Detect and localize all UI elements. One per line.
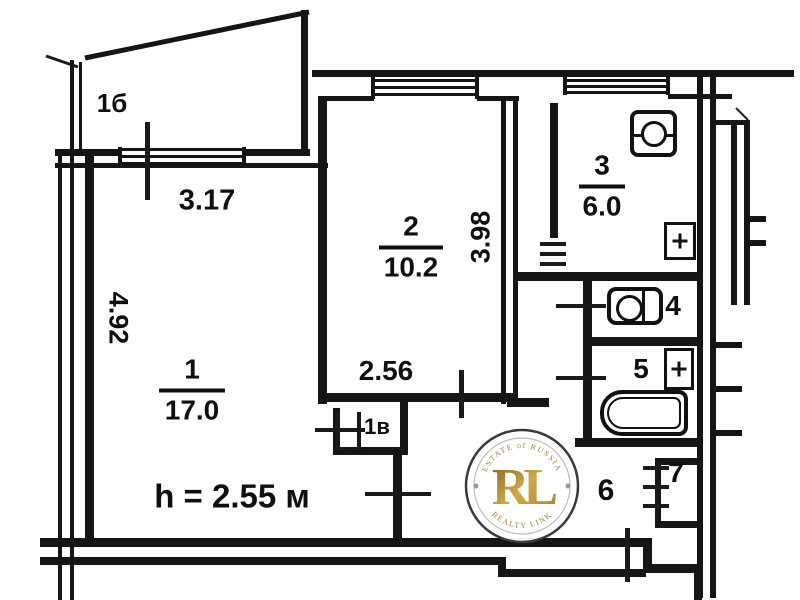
wall xyxy=(716,386,742,392)
antenna-stem xyxy=(79,62,82,152)
wall xyxy=(312,70,794,77)
fraction-line xyxy=(579,185,625,189)
door-opening-tick xyxy=(336,412,340,450)
dim-balcony-width: 3.17 xyxy=(179,187,235,216)
door-opening-tick xyxy=(540,252,566,256)
wall xyxy=(550,103,558,238)
door-opening-tick xyxy=(625,528,630,582)
room-number: 2 xyxy=(403,213,419,241)
window-cap xyxy=(563,77,567,95)
wall xyxy=(513,97,518,404)
wall xyxy=(40,557,505,565)
wall xyxy=(318,96,327,404)
watermark-seal: ESTATE of RUSSIA REALTY LINK RL xyxy=(452,416,592,556)
floor-plan: 1б 3.17 1 17.0 4.92 h = 2.55 м 2 10.2 3.… xyxy=(0,0,800,600)
wall xyxy=(655,521,697,528)
wall xyxy=(744,120,750,305)
seal-dot-right xyxy=(566,484,571,489)
door-opening-tick xyxy=(145,122,150,200)
door-opening-tick xyxy=(459,370,464,418)
wall xyxy=(507,398,549,407)
room-1-label: 1 17.0 xyxy=(159,356,225,425)
wall xyxy=(55,149,122,156)
stove-burner xyxy=(641,121,667,147)
plus-icon xyxy=(678,362,681,377)
window-cap xyxy=(242,147,246,167)
door-opening-tick xyxy=(365,492,431,496)
stove-icon xyxy=(630,110,677,157)
window-line xyxy=(374,79,477,82)
window-line xyxy=(566,79,668,82)
room-3-label: 3 6.0 xyxy=(579,152,625,221)
bathtub-icon xyxy=(600,390,688,436)
wall xyxy=(583,337,698,346)
room-number: 3 xyxy=(594,152,610,180)
door-opening-tick xyxy=(556,376,606,380)
window-cap xyxy=(371,77,375,99)
ceiling-height-note: h = 2.55 м xyxy=(154,480,310,513)
wall xyxy=(518,272,698,281)
fraction-line xyxy=(379,246,443,250)
vent-shaft-icon xyxy=(664,222,696,260)
window-line xyxy=(120,155,245,158)
wall xyxy=(393,447,402,545)
wall xyxy=(498,569,646,577)
window-line xyxy=(120,148,245,151)
wall xyxy=(58,152,62,600)
door-opening-tick xyxy=(643,504,669,508)
room-2-label: 2 10.2 xyxy=(379,213,443,282)
wall xyxy=(575,438,698,447)
closet-label: 1в xyxy=(364,416,390,438)
room-number: 1 xyxy=(184,356,200,384)
fraction-line xyxy=(159,389,225,393)
room-area: 10.2 xyxy=(384,254,439,282)
room-area: 6.0 xyxy=(583,193,622,221)
wall xyxy=(583,281,592,341)
window-cap xyxy=(118,147,122,167)
dim-room2-depth: 3.98 xyxy=(468,211,495,264)
wall xyxy=(85,150,94,545)
window-line xyxy=(374,86,477,89)
door-opening-tick xyxy=(643,485,669,489)
window-line xyxy=(566,91,668,94)
seal-initials: RL xyxy=(492,459,557,516)
room-5-label: 5 xyxy=(633,355,649,383)
plus-icon xyxy=(679,234,682,249)
window-cap xyxy=(475,77,479,99)
wall xyxy=(750,240,766,246)
wall xyxy=(694,564,702,600)
stair-tick xyxy=(736,108,748,120)
wall xyxy=(70,60,74,600)
room-6-label: 6 xyxy=(598,476,615,506)
seal-dot-left xyxy=(474,484,479,489)
balcony-slant-wall xyxy=(85,12,309,58)
door-opening-tick xyxy=(556,304,606,308)
wall xyxy=(697,74,703,598)
door-opening-tick xyxy=(540,242,566,246)
window-line xyxy=(120,162,245,165)
door-opening-tick xyxy=(643,466,669,470)
bathtub-inner xyxy=(607,397,681,429)
toilet-icon xyxy=(607,287,663,325)
wall xyxy=(710,74,716,598)
room-area: 17.0 xyxy=(165,397,220,425)
door-opening-tick xyxy=(540,262,566,266)
balcony-label: 1б xyxy=(97,90,128,116)
window-line xyxy=(374,93,477,96)
dim-room2-width: 2.56 xyxy=(359,357,414,385)
wall xyxy=(501,97,506,404)
dim-room1-depth: 4.92 xyxy=(105,292,132,345)
room-4-label: 4 xyxy=(665,292,681,320)
wall xyxy=(716,430,742,436)
window-line xyxy=(566,85,668,88)
toilet-tank xyxy=(642,287,645,325)
room-7-label: 7 xyxy=(668,459,684,487)
wall xyxy=(716,342,742,348)
toilet-bowl xyxy=(616,295,643,322)
window-cap xyxy=(666,77,670,95)
wall xyxy=(750,216,766,222)
wall xyxy=(243,149,310,156)
vent-shaft-icon xyxy=(664,348,694,390)
wall xyxy=(318,393,518,402)
wall xyxy=(731,120,737,305)
door-opening-tick xyxy=(357,412,361,450)
wall xyxy=(301,10,308,152)
